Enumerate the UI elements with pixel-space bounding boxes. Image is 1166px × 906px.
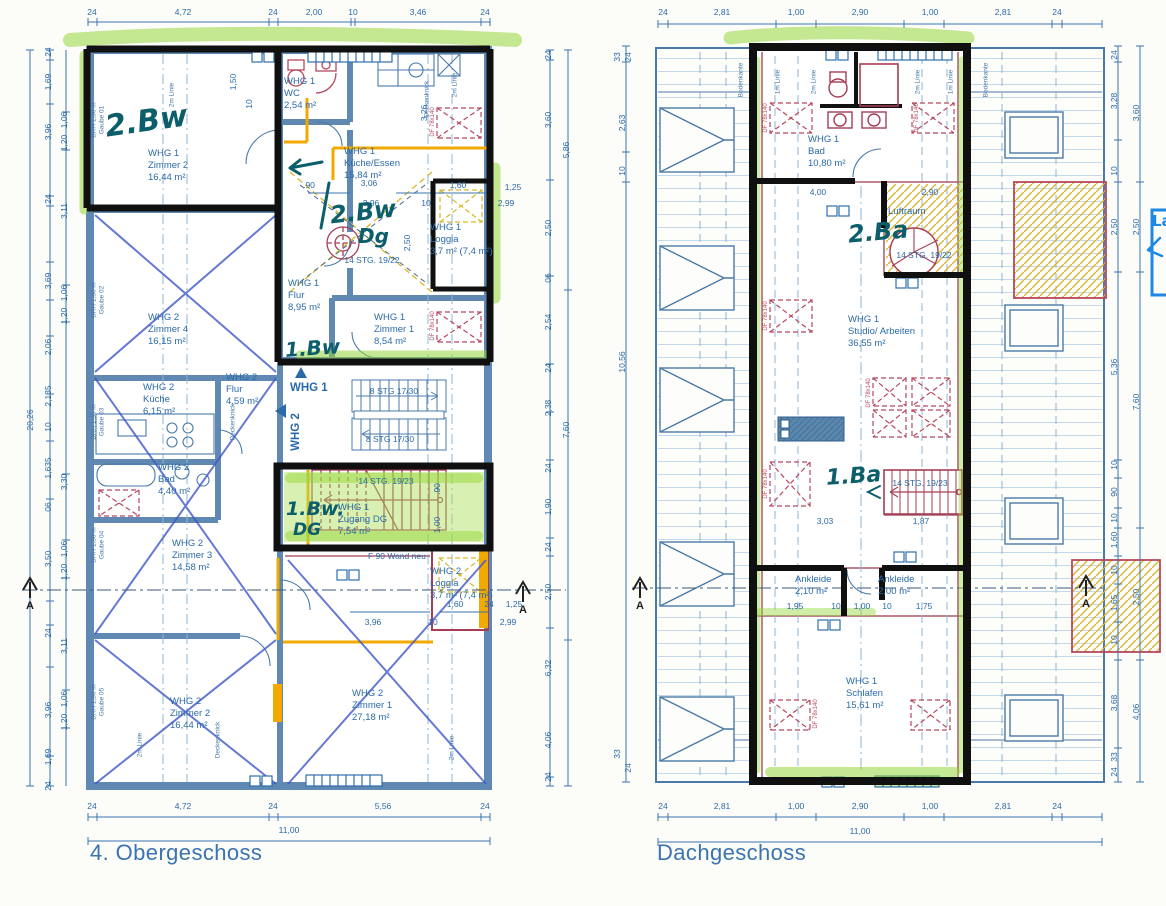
- dim-label: 1,69: [43, 749, 53, 766]
- dim-label: 10: [831, 601, 840, 611]
- dim-label: 1,87: [913, 516, 930, 526]
- dim-label: 24: [1052, 801, 1061, 811]
- line-label: 2m Linie: [811, 70, 818, 95]
- dim-label: 10: [43, 422, 53, 431]
- stair-label: 14 STG. 19/22: [896, 250, 951, 260]
- room-label: WHG 2Zimmer 314,58 m²: [172, 538, 212, 574]
- roof-edge-label: Bodenkante: [983, 63, 990, 98]
- dim-label: 7,60: [561, 422, 571, 439]
- roof-window-label: DF 78x140: [430, 311, 436, 340]
- room-label: Ankleide2,10 m²: [795, 574, 831, 598]
- dim-label: 4,72: [175, 801, 192, 811]
- dim-label: 3,60: [543, 112, 553, 129]
- line-label: 2m Linie: [137, 733, 144, 758]
- dim-label: 24: [43, 781, 53, 790]
- dim-label: 10: [1109, 635, 1119, 644]
- dim-label: 10,56: [617, 351, 627, 372]
- dim-label: 10: [617, 166, 627, 175]
- dim-label: 24: [1109, 50, 1119, 59]
- pen-annotation: 1.Bw: [284, 334, 341, 362]
- dim-label: 3,96: [365, 617, 382, 627]
- dim-label: 24: [658, 7, 667, 17]
- dim-label: 06: [543, 273, 553, 282]
- dim-label: 10: [1109, 565, 1119, 574]
- dim-label: 2,81: [995, 7, 1012, 17]
- line-label: 1m Linie: [948, 70, 955, 95]
- dim-label: 2,81: [995, 801, 1012, 811]
- room-label: WHG 1Flur8,95 m²: [288, 278, 320, 314]
- dim-label: 1,60: [450, 180, 467, 190]
- dim-label: 24: [543, 772, 553, 781]
- dim-label: 10: [1109, 166, 1119, 175]
- dim-label: 24: [480, 801, 489, 811]
- f90-note: F 90 Wand neu: [368, 551, 426, 561]
- dim-label: 1,50: [228, 74, 238, 91]
- dim-label: 24: [87, 801, 96, 811]
- dim-label: 5,56: [375, 801, 392, 811]
- dim-label: 4,00: [810, 187, 827, 197]
- dim-label: 24: [623, 52, 633, 61]
- dim-label: .90: [432, 483, 442, 495]
- dim-label: 1,90: [543, 499, 553, 516]
- roof-window-label: DF 78x140: [763, 103, 769, 132]
- dim-label: 3,60: [1131, 105, 1141, 122]
- dim-label: 10: [244, 99, 254, 108]
- dim-label: 3,11: [59, 203, 69, 219]
- dim-label: 33: [612, 749, 622, 758]
- dim-label: 1,69: [43, 74, 53, 91]
- stair-label: 8 STG 17/30: [366, 434, 414, 444]
- dim-label: 24: [43, 628, 53, 637]
- gaube-label: Gaube 05: [99, 688, 106, 717]
- dim-label: 10: [428, 617, 437, 627]
- dim-label: 10: [882, 601, 891, 611]
- line-label: 2m Linie: [449, 736, 456, 761]
- dim-label: 24: [543, 363, 553, 372]
- dim-label: 2,50: [1131, 589, 1141, 606]
- dim-label: 2,81: [714, 7, 731, 17]
- dim-label: 1,635: [43, 457, 53, 478]
- dim-label: 3,68: [1109, 695, 1119, 712]
- line-label: 2m Linie: [915, 70, 922, 95]
- dim-label: 24: [543, 463, 553, 472]
- dim-label: 24: [484, 599, 493, 609]
- dim-label: 24: [43, 194, 53, 203]
- dim-label: 20,26: [25, 409, 35, 430]
- dim-label: 4,06: [1131, 704, 1141, 721]
- room-label: WHG 1Bad10,80 m²: [808, 134, 846, 170]
- room-label: WHG 1Studio/ Arbeiten36,55 m²: [848, 314, 915, 350]
- dim-label: 1,06: [59, 285, 69, 302]
- dim-label: 3,69: [43, 273, 53, 290]
- dim-label: 24: [543, 542, 553, 551]
- roof-window-label: DF 78x140: [866, 378, 872, 407]
- dim-label: 90: [1109, 487, 1119, 496]
- room-label: WHG 2Zimmer 127,18 m²: [352, 688, 392, 724]
- dim-label: 1,95: [787, 601, 804, 611]
- dim-label: 1,06: [59, 691, 69, 708]
- room-label: WHG 1Zugang DG7,54 m²: [338, 502, 387, 538]
- dim-label: 3,46: [410, 7, 427, 17]
- dim-label: 24: [268, 7, 277, 17]
- left-plan-title: 4. Obergeschoss: [90, 840, 262, 866]
- dim-label: 1,06: [59, 112, 69, 129]
- dim-label: 24: [1109, 767, 1119, 776]
- room-label: WHG 1Zimmer 216,44 m²: [148, 148, 188, 184]
- gaube-label: Gaube 04: [99, 531, 106, 560]
- pen-annotation: 1.Bw.: [286, 498, 344, 520]
- dim-label: 24: [268, 801, 277, 811]
- section-marker-a: A: [519, 604, 527, 616]
- dim-label: 1,00: [788, 801, 805, 811]
- room-label: WHG 2Loggia3,7 m² (7,4 m²): [430, 566, 493, 602]
- dim-label: 3,03: [817, 516, 834, 526]
- section-marker-a: A: [26, 600, 34, 612]
- room-label: WHG 1Zimmer 18,54 m²: [374, 312, 414, 348]
- room-label: WHG 2Zimmer 416,15 m²: [148, 312, 188, 348]
- gaube-label: Gaube 03: [99, 408, 106, 437]
- line-label: 1m Linie: [775, 70, 782, 95]
- right-plan-title: Dachgeschoss: [657, 840, 806, 866]
- dim-label: 3,50: [43, 551, 53, 568]
- sill-label: BRH 1,30 m: [91, 527, 98, 562]
- right-plan-red-stair: [884, 470, 962, 514]
- dim-label: 1,20: [59, 714, 69, 731]
- dim-label: 2,50: [543, 584, 553, 601]
- stair-label: 8 STG 17/30: [370, 386, 418, 396]
- dim-label: 24: [480, 7, 489, 17]
- dim-label: 2,50: [402, 235, 412, 252]
- dim-label: 1,75: [916, 601, 933, 611]
- stair-label: 14 STG. 19/23: [358, 476, 413, 486]
- room-label: WHG 2Küche6,15 m²: [143, 382, 175, 418]
- roof-window-label: DF 78x140: [813, 699, 819, 728]
- dim-label: 5,86: [561, 142, 571, 159]
- dim-label: 1,06: [59, 541, 69, 558]
- room-label: Ankleide2,00 m²: [878, 574, 914, 598]
- roof-window-label: DF 78x140: [430, 107, 436, 136]
- dim-label: 3,06: [361, 178, 378, 188]
- dim-label: 4,06: [543, 732, 553, 749]
- room-label: WHG 1Küche/Essen15,84 m²: [344, 146, 400, 182]
- dim-label: 24: [543, 50, 553, 59]
- roof-edge-label: Bodenkante: [738, 63, 745, 98]
- dim-label: 2,38: [543, 400, 553, 417]
- dim-label: 1,65: [1109, 595, 1119, 612]
- dim-label: 2,06: [43, 339, 53, 356]
- dim-label: 3,28: [1109, 93, 1119, 110]
- dim-label: .90: [303, 180, 315, 190]
- roof-window-label: DF 78x140: [914, 103, 920, 132]
- dim-label: 2,90: [852, 801, 869, 811]
- ceiling-kink-label: Deckenknick: [230, 404, 237, 441]
- pen-annotation: Dg: [358, 224, 389, 248]
- roof-window-label: DF 78x140: [763, 301, 769, 330]
- stair-label: 14 STG. 19/23: [892, 478, 947, 488]
- dim-label: 2,81: [714, 801, 731, 811]
- whg1-entrance-marker: WHG 1: [290, 382, 328, 394]
- dim-label: 3,11: [59, 638, 69, 654]
- dim-label: 1,20: [59, 564, 69, 581]
- dim-label: 6,32: [543, 660, 553, 677]
- ceiling-kink-label: Deckenknick: [215, 722, 222, 759]
- dim-label: 5,36: [1109, 359, 1119, 376]
- dim-label: 2,50: [1131, 219, 1141, 236]
- dim-label: 24: [658, 801, 667, 811]
- section-marker-a: A: [636, 600, 644, 612]
- sill-label: BRH 1,30 m: [91, 102, 98, 137]
- dim-label: 24: [1052, 7, 1061, 17]
- line-label: 2m Linie: [452, 73, 459, 98]
- gaube-label: Gaube 02: [99, 286, 106, 315]
- dim-label: 10: [421, 198, 430, 208]
- dim-label: 11,00: [279, 825, 300, 835]
- dim-label: 1,00: [432, 517, 442, 534]
- sill-label: BRH 1,30 m: [91, 404, 98, 439]
- room-label: WHG 2Zimmer 216,44 m²: [170, 696, 210, 732]
- stair-label: 14 STG. 19/22: [344, 255, 399, 265]
- pen-annotation: DG: [293, 520, 321, 540]
- dim-label: 24: [43, 47, 53, 56]
- dim-label: 4,72: [175, 7, 192, 17]
- pen-annotation: 2.Ba: [847, 215, 910, 248]
- dim-label: 1,20: [59, 308, 69, 325]
- dim-label: 2,54: [543, 314, 553, 331]
- section-marker-a: A: [1082, 598, 1090, 610]
- room-label: WHG 1Schlafen15,61 m²: [846, 676, 884, 712]
- dim-label: 1,00: [788, 7, 805, 17]
- dim-label: 2,50: [1109, 219, 1119, 236]
- dim-label: 1,60: [447, 599, 464, 609]
- dim-label: 33: [612, 52, 622, 61]
- dim-label: 1,00: [922, 801, 939, 811]
- dim-label: 2,00: [306, 7, 323, 17]
- dim-label: 3,30: [59, 474, 69, 491]
- dim-label: 24: [623, 763, 633, 772]
- dim-label: 24: [87, 7, 96, 17]
- dim-label: 1,00: [854, 601, 871, 611]
- dim-label: 1,60: [1109, 532, 1119, 549]
- room-label: WHG 1Loggia3,7 m² (7,4 m²): [430, 222, 493, 258]
- dim-label: 2,90: [852, 7, 869, 17]
- dim-label: 2,99: [498, 198, 515, 208]
- sill-label: BRH 1,30 m: [91, 282, 98, 317]
- dim-label: 10: [1109, 513, 1119, 522]
- dim-label: 1,20: [59, 135, 69, 152]
- pen-annotation: 1.Ba: [825, 462, 882, 491]
- dim-label: 1,25: [505, 182, 522, 192]
- dim-label: 3,96: [43, 124, 53, 141]
- plan-linework: [0, 0, 1166, 906]
- dim-label: 2,135: [43, 385, 53, 406]
- dim-label: 10: [1109, 460, 1119, 469]
- room-label: WHG 1WC2,54 m²: [284, 76, 316, 112]
- room-label: WHG 2Bad4,40 m²: [158, 462, 190, 498]
- dim-label: 10: [348, 7, 357, 17]
- dim-label: 2,63: [617, 115, 627, 132]
- dim-label: 06: [43, 502, 53, 511]
- whg2-entrance-marker: WHG 2: [290, 413, 302, 451]
- dim-label: 2,99: [500, 617, 517, 627]
- dim-label: 2,90: [922, 187, 939, 197]
- dim-label: 1,00: [922, 7, 939, 17]
- sill-label: BRH 1,30 m: [91, 684, 98, 719]
- floorplan-scan: WHG 1Zimmer 216,44 m² WHG 1WC2,54 m² WHG…: [0, 0, 1166, 906]
- roof-window-label: DF 78x140: [763, 469, 769, 498]
- dim-label: 3,96: [43, 702, 53, 719]
- dim-label: 2,50: [543, 220, 553, 237]
- blue-pen-note: La: [1152, 212, 1166, 230]
- dim-label: 33: [1109, 752, 1119, 761]
- dim-label: 7,60: [1131, 394, 1141, 411]
- right-plan-island: [778, 417, 844, 441]
- dim-label: 11,00: [850, 826, 871, 836]
